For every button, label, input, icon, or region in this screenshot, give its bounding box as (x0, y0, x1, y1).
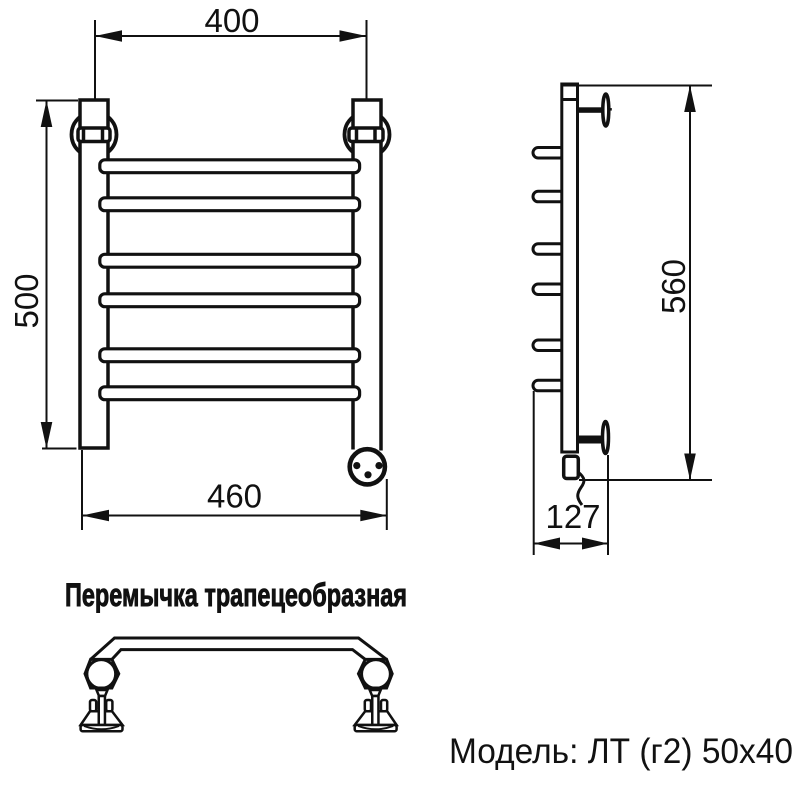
svg-text:Модель: ЛТ (г2) 50x40: Модель: ЛТ (г2) 50x40 (449, 732, 793, 771)
svg-text:127: 127 (545, 498, 600, 535)
svg-text:400: 400 (204, 2, 259, 39)
svg-text:560: 560 (655, 259, 692, 314)
svg-text:Перемычка трапецеобразная: Перемычка трапецеобразная (65, 577, 407, 613)
svg-text:460: 460 (207, 478, 262, 515)
svg-text:500: 500 (8, 273, 45, 328)
